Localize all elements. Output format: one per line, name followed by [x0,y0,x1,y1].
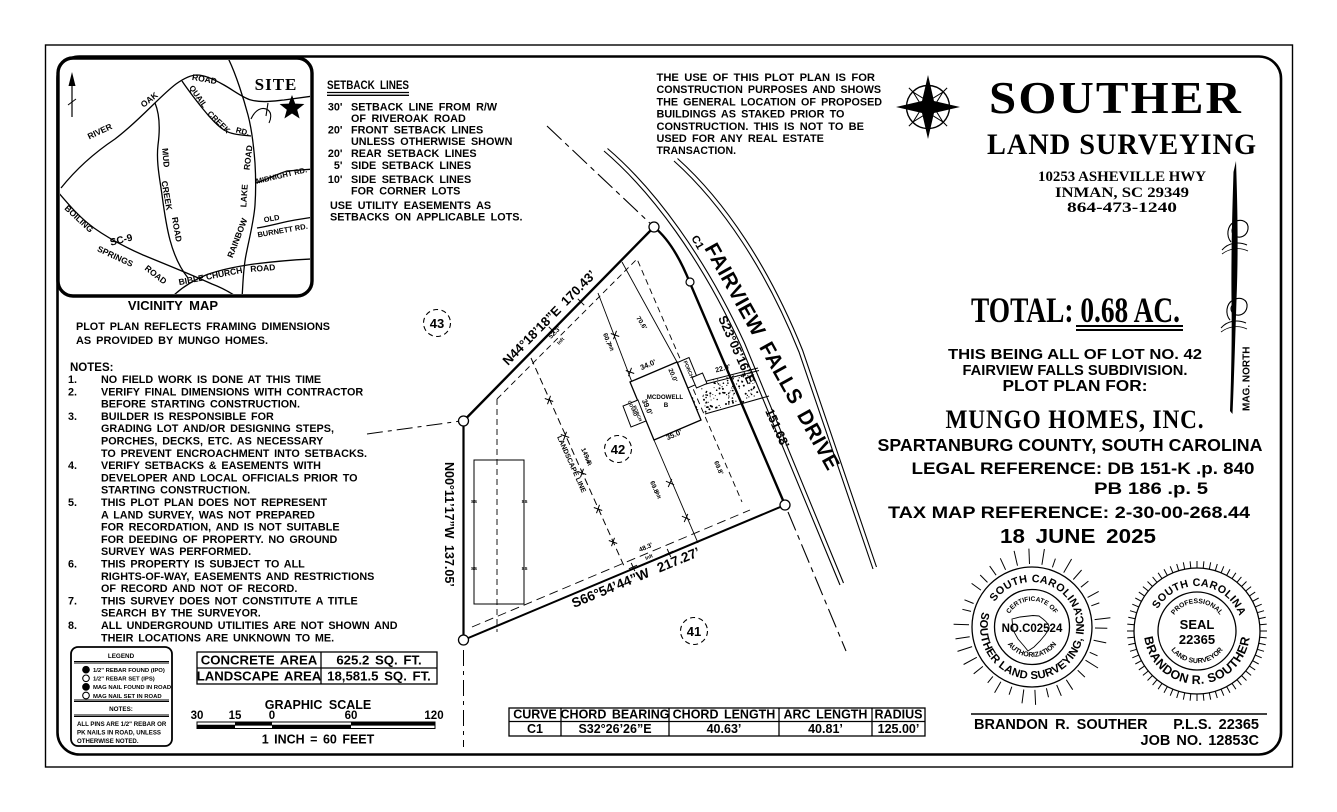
svg-text:22365: 22365 [1179,632,1215,647]
svg-text:FOR RECORDATION, AND IS NOT SU: FOR RECORDATION, AND IS NOT SUITABLE [101,522,340,534]
svg-text:MAG NAIL FOUND IN ROAD: MAG NAIL FOUND IN ROAD [93,685,171,691]
svg-text:PLOT PLAN REFLECTS FRAMING DIM: PLOT PLAN REFLECTS FRAMING DIMENSIONS [76,321,330,333]
svg-text:8.: 8. [68,620,77,632]
svg-text:FAIRVIEW FALLS SUBDIVISION.: FAIRVIEW FALLS SUBDIVISION. [963,363,1188,379]
svg-text:INMAN, SC 29349: INMAN, SC 29349 [1055,185,1189,201]
svg-text:3.: 3. [68,411,77,423]
svg-text:TRANSACTION.: TRANSACTION. [657,145,737,157]
svg-text:N00°11’17”W 137.05’: N00°11’17”W 137.05’ [442,462,456,587]
svg-text:THIS BEING ALL OF LOT NO. 42: THIS BEING ALL OF LOT NO. 42 [948,347,1202,363]
svg-text:BUILDINGS AS STAKED PRIOR TO: BUILDINGS AS STAKED PRIOR TO [657,109,845,121]
svg-text:P.L.S. 22365: P.L.S. 22365 [1173,717,1259,733]
svg-text:MCDOWELL: MCDOWELL [647,394,684,401]
svg-text:ss: ss [471,566,477,572]
svg-text:BEFORE STARTING CONSTRUCTION.: BEFORE STARTING CONSTRUCTION. [101,399,300,411]
svg-text:REAR SETBACK LINES: REAR SETBACK LINES [351,148,477,160]
svg-text:RIGHTS-OF-WAY, EASEMENTS AND R: RIGHTS-OF-WAY, EASEMENTS AND RESTRICTION… [101,571,374,583]
svg-text:BRANDON R. SOUTHER: BRANDON R. SOUTHER [974,717,1148,733]
svg-text:BUILDER IS RESPONSIBLE FOR: BUILDER IS RESPONSIBLE FOR [101,411,274,423]
svg-text:CONSTRUCTION. THIS IS NOT TO B: CONSTRUCTION. THIS IS NOT TO BE [657,121,865,133]
svg-text:18 JUNE 2025: 18 JUNE 2025 [1000,526,1156,548]
svg-text:18,581.5 SQ. FT.: 18,581.5 SQ. FT. [327,669,431,684]
svg-text:THE USE OF THIS PLOT PLAN IS F: THE USE OF THIS PLOT PLAN IS FOR [657,72,876,84]
svg-text:LEGAL REFERENCE: DB 151-K .p.: LEGAL REFERENCE: DB 151-K .p. 840 [912,459,1255,478]
svg-text:JOB NO. 12853C: JOB NO. 12853C [1141,733,1260,749]
svg-text:THIS SURVEY DOES NOT CONSTITUT: THIS SURVEY DOES NOT CONSTITUTE A TITLE [101,595,358,607]
svg-text:ROAD: ROAD [250,262,276,274]
svg-text:SITE: SITE [255,75,298,94]
svg-text:USED FOR ANY REAL ESTATE: USED FOR ANY REAL ESTATE [657,133,824,145]
svg-text:PK NAILS IN ROAD, UNLESS: PK NAILS IN ROAD, UNLESS [77,730,161,737]
svg-text:5.: 5. [68,497,77,509]
svg-text:SETBACKS ON APPLICABLE LOTS.: SETBACKS ON APPLICABLE LOTS. [330,212,522,224]
svg-text:MAG NAIL SET IN ROAD: MAG NAIL SET IN ROAD [93,694,162,700]
svg-text:10': 10' [328,174,343,186]
svg-text:625.2 SQ. FT.: 625.2 SQ. FT. [336,653,421,668]
svg-text:NOTES:: NOTES: [109,706,133,713]
svg-text:USE UTILITY EASEMENTS AS: USE UTILITY EASEMENTS AS [330,200,491,212]
svg-text:43: 43 [430,316,444,331]
svg-text:40.81’: 40.81’ [808,722,843,736]
svg-text:VERIFY SETBACKS & EASEMENTS WI: VERIFY SETBACKS & EASEMENTS WITH [101,460,321,472]
svg-text:CONCRETE AREA: CONCRETE AREA [201,653,318,668]
svg-text:PLOT PLAN FOR:: PLOT PLAN FOR: [1003,378,1148,395]
svg-text:C1: C1 [527,722,543,736]
svg-text:40.63’: 40.63’ [707,722,742,736]
svg-text:FOR CORNER LOTS: FOR CORNER LOTS [351,186,460,198]
svg-text:THIS PLOT PLAN DOES NOT REPRES: THIS PLOT PLAN DOES NOT REPRESENT [101,497,328,509]
svg-text:ARC LENGTH: ARC LENGTH [784,708,868,722]
svg-text:ALL UNDERGROUND UTILITIES ARE: ALL UNDERGROUND UTILITIES ARE NOT SHOWN … [101,620,398,632]
svg-text:60: 60 [345,710,358,722]
svg-text:VERIFY FINAL DIMENSIONS WITH C: VERIFY FINAL DIMENSIONS WITH CONTRACTOR [101,386,363,398]
svg-text:OTHERWISE NOTED.: OTHERWISE NOTED. [77,738,139,745]
svg-text:2.: 2. [68,386,77,398]
svg-text:VICINITY MAP: VICINITY MAP [128,298,218,313]
svg-text:THEIR LOCATIONS ARE UNKNOWN TO: THEIR LOCATIONS ARE UNKNOWN TO ME. [101,632,334,644]
svg-text:NO.C02524: NO.C02524 [1002,623,1063,635]
svg-text:CURVE: CURVE [513,708,557,722]
svg-text:125.00’: 125.00’ [878,722,920,736]
svg-text:SURVEY WAS PERFORMED.: SURVEY WAS PERFORMED. [101,546,251,558]
svg-text:DEVELOPER AND LOCAL OFFICIALS: DEVELOPER AND LOCAL OFFICIALS PRIOR TO [101,472,358,484]
svg-text:ss: ss [521,566,527,572]
svg-text:LAND SURVEYING: LAND SURVEYING [987,128,1257,161]
svg-text:MUD: MUD [160,148,172,168]
svg-text:30': 30' [328,102,343,114]
svg-text:1.: 1. [68,374,77,386]
svg-text:SETBACK LINES: SETBACK LINES [327,78,409,92]
svg-text:AS PROVIDED BY MUNGO HOMES.: AS PROVIDED BY MUNGO HOMES. [76,335,268,347]
svg-text:42: 42 [611,442,625,457]
svg-text:SIDE SETBACK LINES: SIDE SETBACK LINES [351,174,471,186]
svg-text:41: 41 [687,624,701,639]
svg-text:MUNGO HOMES, INC.: MUNGO HOMES, INC. [946,405,1205,434]
svg-text:1 INCH = 60 FEET: 1 INCH = 60 FEET [262,733,375,747]
svg-text:ss: ss [471,499,477,505]
svg-text:TOTAL: 0.68 AC.: TOTAL: 0.68 AC. [971,290,1180,330]
svg-text:LEGEND: LEGEND [108,653,135,660]
svg-text:7.: 7. [68,595,77,607]
svg-text:SPARTANBURG COUNTY, SOUTH CARO: SPARTANBURG COUNTY, SOUTH CAROLINA [878,435,1263,455]
svg-text:20': 20' [328,148,343,160]
svg-text:SOUTHER: SOUTHER [989,72,1243,123]
svg-text:SEARCH BY THE SURVEYOR.: SEARCH BY THE SURVEYOR. [101,608,261,620]
svg-text:LANDSCAPE AREA: LANDSCAPE AREA [197,669,322,684]
svg-text:CHORD BEARING: CHORD BEARING [561,708,670,722]
svg-text:CHORD LENGTH: CHORD LENGTH [673,708,776,722]
svg-text:TAX MAP REFERENCE: 2-30-00-268: TAX MAP REFERENCE: 2-30-00-268.44 [888,503,1251,522]
svg-text:THIS PROPERTY IS SUBJECT TO AL: THIS PROPERTY IS SUBJECT TO ALL [101,559,305,571]
svg-text:1/2" REBAR SET (IPS): 1/2" REBAR SET (IPS) [93,677,155,683]
svg-text:OF RECORD AND NOT OF RECORD.: OF RECORD AND NOT OF RECORD. [101,583,297,595]
svg-text:120: 120 [424,710,443,722]
svg-text:PB 186 .p. 5: PB 186 .p. 5 [1094,479,1208,498]
svg-text:SIDE SETBACK LINES: SIDE SETBACK LINES [351,160,471,172]
svg-text:LAKE: LAKE [238,184,250,208]
svg-text:TO PREVENT ENCROACHMENT INTO S: TO PREVENT ENCROACHMENT INTO SETBACKS. [101,448,367,460]
svg-text:6.: 6. [68,559,77,571]
svg-text:1/2" REBAR FOUND (IPO): 1/2" REBAR FOUND (IPO) [93,668,165,674]
svg-text:SEAL: SEAL [1180,617,1215,632]
svg-text:STARTING CONSTRUCTION.: STARTING CONSTRUCTION. [101,485,250,497]
svg-text:NO FIELD WORK IS DONE AT THIS: NO FIELD WORK IS DONE AT THIS TIME [101,374,321,386]
svg-text:RADIUS: RADIUS [875,708,923,722]
svg-text:A LAND SURVEY, WAS NOT PREPARE: A LAND SURVEY, WAS NOT PREPARED [101,509,315,521]
svg-text:FRONT SETBACK LINES: FRONT SETBACK LINES [351,125,483,137]
svg-text:NOTES:: NOTES: [70,362,113,374]
svg-text:UNLESS OTHERWISE SHOWN: UNLESS OTHERWISE SHOWN [351,136,513,148]
svg-text:CONSTRUCTION PURPOSES AND SHOW: CONSTRUCTION PURPOSES AND SHOWS [657,84,882,96]
svg-text:THE GENERAL LOCATION OF PROPOS: THE GENERAL LOCATION OF PROPOSED [657,96,883,108]
svg-text:10253 ASHEVILLE HWY: 10253 ASHEVILLE HWY [1038,169,1206,185]
svg-text:SETBACK LINE FROM R/W: SETBACK LINE FROM R/W [351,102,498,114]
svg-text:ALL PINS ARE 1/2" REBAR OR: ALL PINS ARE 1/2" REBAR OR [77,721,167,728]
svg-text:15: 15 [229,710,242,722]
svg-text:0: 0 [269,710,275,722]
svg-text:5': 5' [334,160,343,172]
svg-text:S32°26’26”E: S32°26’26”E [578,722,651,736]
svg-text:GRADING LOT AND/OR DESIGNING S: GRADING LOT AND/OR DESIGNING STEPS, [101,423,334,435]
svg-text:FOR DEEDING OF PROPERTY. NO G: FOR DEEDING OF PROPERTY. NO GROUND [101,534,338,546]
svg-text:B: B [664,402,669,409]
svg-text:864-473-1240: 864-473-1240 [1067,200,1177,216]
svg-text:MAG. NORTH: MAG. NORTH [1242,347,1253,411]
svg-text:4.: 4. [68,460,77,472]
svg-text:30: 30 [191,710,204,722]
svg-text:20': 20' [328,125,343,137]
svg-text:OF RIVEROAK ROAD: OF RIVEROAK ROAD [351,113,466,125]
svg-text:ss: ss [521,499,527,505]
svg-text:PORCHES, DECKS, ETC. AS NECESS: PORCHES, DECKS, ETC. AS NECESSARY [101,436,324,448]
